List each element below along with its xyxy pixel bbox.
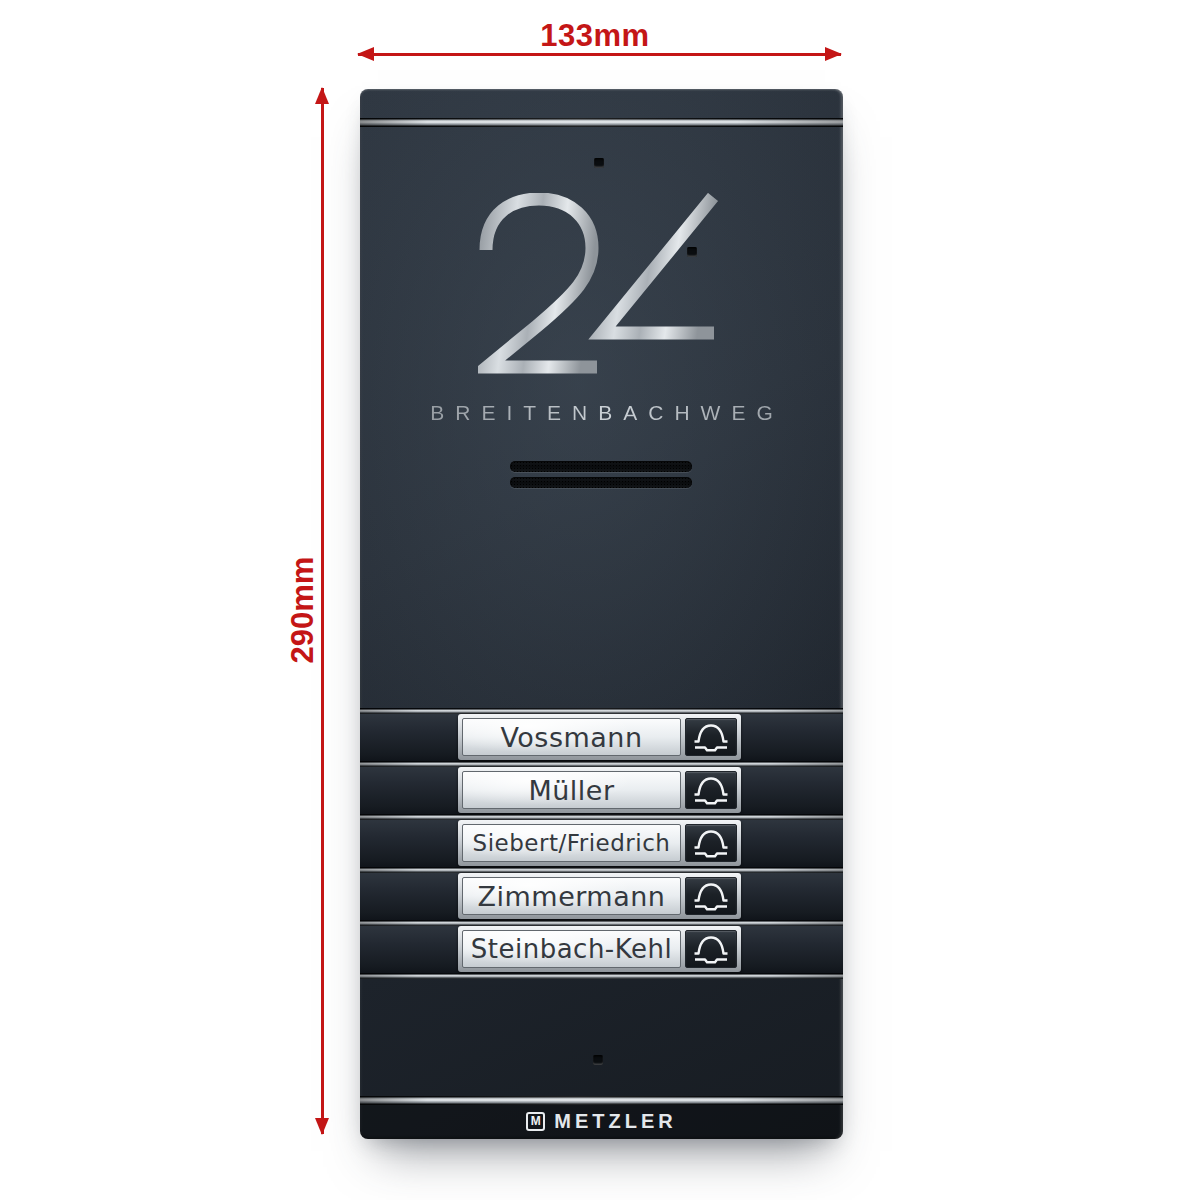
name-plate-label: Zimmermann (478, 881, 666, 912)
name-plate: Steinbach-Kehl (462, 930, 681, 968)
screw-hole (594, 158, 604, 168)
top-trim-strip (360, 118, 843, 127)
name-plate-label: Steinbach-Kehl (471, 934, 672, 964)
separator-strip (360, 973, 843, 979)
doorbell-unit: Vossmann (458, 714, 741, 760)
bell-button[interactable] (685, 930, 737, 968)
name-plate-label: Siebert/Friedrich (473, 830, 671, 856)
height-dimension-label: 290mm (283, 540, 323, 680)
bell-button[interactable] (685, 718, 737, 756)
width-dimension-label: 133mm (470, 18, 720, 54)
arrow-left-icon (357, 47, 374, 61)
brand-logo-icon: M (526, 1112, 545, 1131)
speaker-grille (510, 461, 692, 493)
house-number (478, 193, 742, 399)
bottom-trim-strip (360, 1096, 843, 1105)
doorbell-unit: Steinbach-Kehl (458, 926, 741, 972)
name-plate: Zimmermann (462, 877, 681, 915)
intercom-panel: BREITENBACHWEG Vossmann (360, 89, 843, 1139)
width-dimension-arrow (358, 53, 841, 56)
bell-icon (691, 933, 731, 965)
name-plate-label: Vossmann (500, 722, 642, 753)
bell-button[interactable] (685, 877, 737, 915)
bell-icon (691, 721, 731, 753)
doorbell-unit: Müller (458, 767, 741, 813)
bell-icon (691, 774, 731, 806)
arrow-right-icon (825, 47, 842, 61)
bell-icon (691, 827, 731, 859)
product-dimension-diagram: 133mm 290mm (0, 0, 1200, 1200)
name-plate: Vossmann (462, 718, 681, 756)
arrow-up-icon (315, 87, 329, 104)
screw-hole (593, 1055, 603, 1065)
name-plate-label: Müller (528, 775, 614, 806)
name-plate: Siebert/Friedrich (462, 824, 681, 862)
bell-icon (691, 880, 731, 912)
speaker-slot (510, 461, 692, 472)
street-name: BREITENBACHWEG (360, 401, 843, 425)
bell-button[interactable] (685, 824, 737, 862)
brand-wordmark: METZLER (554, 1110, 676, 1133)
speaker-slot (510, 477, 692, 488)
doorbell-unit: Zimmermann (458, 873, 741, 919)
bell-button[interactable] (685, 771, 737, 809)
name-plate: Müller (462, 771, 681, 809)
brand-logo: M METZLER (360, 1108, 843, 1134)
doorbell-unit: Siebert/Friedrich (458, 820, 741, 866)
arrow-down-icon (315, 1118, 329, 1135)
